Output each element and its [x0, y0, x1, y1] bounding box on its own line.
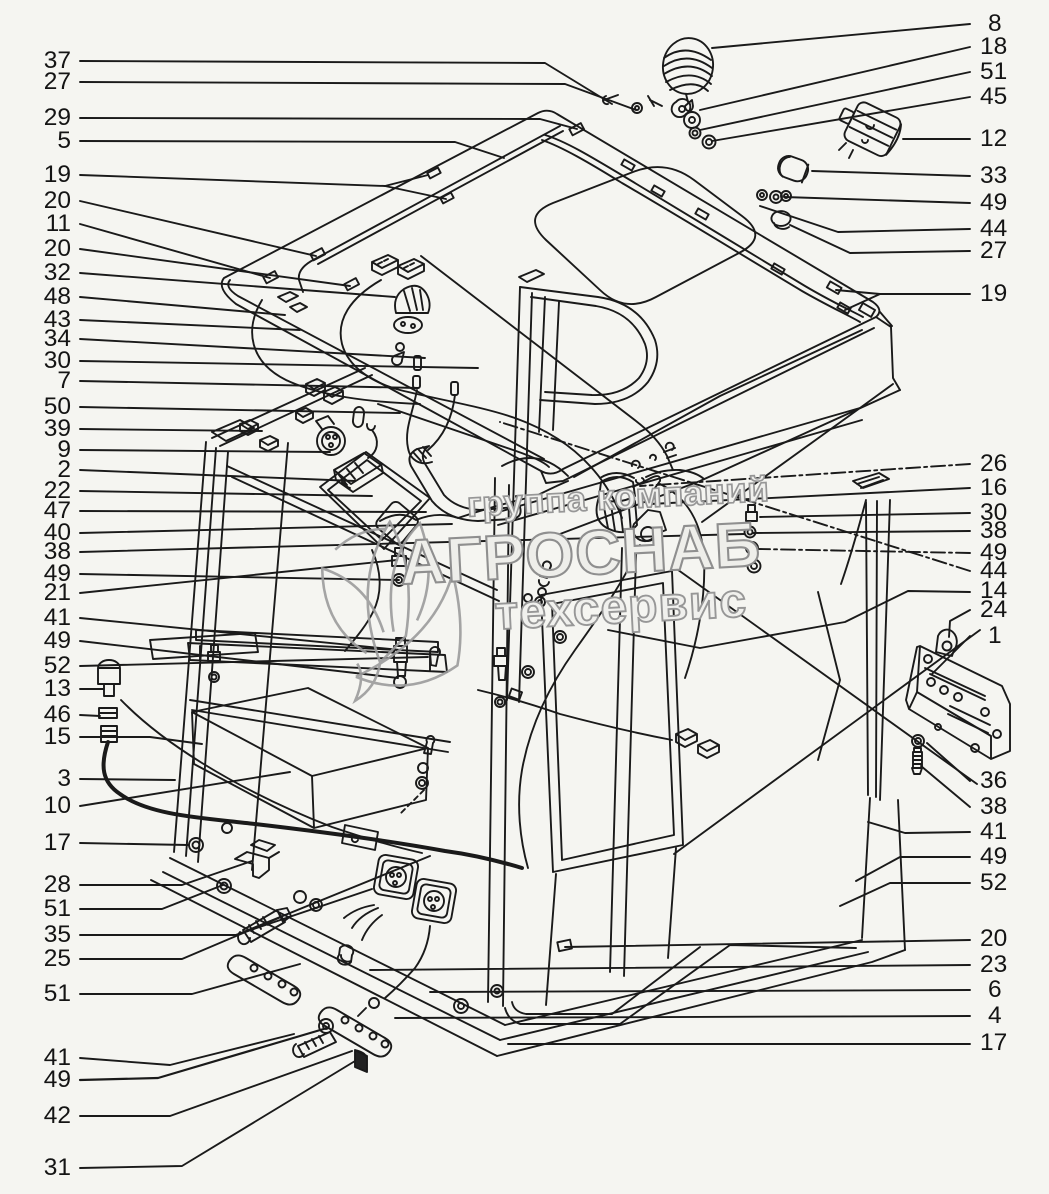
svg-text:21: 21: [44, 579, 71, 606]
svg-text:36: 36: [980, 767, 1007, 794]
svg-text:20: 20: [980, 925, 1007, 952]
svg-text:35: 35: [44, 921, 71, 948]
svg-text:51: 51: [44, 980, 71, 1007]
svg-text:20: 20: [44, 235, 71, 262]
svg-text:17: 17: [980, 1029, 1007, 1056]
svg-text:24: 24: [980, 596, 1007, 623]
svg-text:33: 33: [980, 162, 1007, 189]
svg-text:26: 26: [980, 450, 1007, 477]
svg-text:49: 49: [44, 1066, 71, 1093]
svg-text:7: 7: [57, 367, 71, 394]
svg-text:42: 42: [44, 1102, 71, 1129]
svg-text:17: 17: [44, 829, 71, 856]
svg-text:38: 38: [980, 793, 1007, 820]
svg-text:15: 15: [44, 723, 71, 750]
svg-text:1: 1: [988, 622, 1002, 649]
svg-text:27: 27: [44, 68, 71, 95]
svg-text:51: 51: [44, 895, 71, 922]
svg-text:41: 41: [980, 818, 1007, 845]
svg-text:12: 12: [980, 125, 1007, 152]
svg-text:31: 31: [44, 1154, 71, 1181]
svg-text:32: 32: [44, 259, 71, 286]
svg-text:52: 52: [980, 869, 1007, 896]
svg-text:27: 27: [980, 237, 1007, 264]
svg-text:16: 16: [980, 474, 1007, 501]
svg-text:19: 19: [980, 280, 1007, 307]
svg-text:5: 5: [57, 127, 71, 154]
svg-text:3: 3: [57, 765, 71, 792]
svg-text:4: 4: [988, 1002, 1002, 1029]
svg-text:10: 10: [44, 792, 71, 819]
svg-text:11: 11: [46, 210, 71, 237]
svg-text:49: 49: [980, 189, 1007, 216]
svg-text:51: 51: [980, 58, 1007, 85]
svg-text:25: 25: [44, 945, 71, 972]
svg-text:45: 45: [980, 83, 1007, 110]
svg-text:49: 49: [44, 627, 71, 654]
svg-text:19: 19: [44, 161, 71, 188]
svg-text:23: 23: [980, 951, 1007, 978]
svg-text:49: 49: [980, 843, 1007, 870]
svg-text:18: 18: [980, 33, 1007, 60]
svg-text:6: 6: [988, 976, 1002, 1003]
svg-text:28: 28: [44, 871, 71, 898]
svg-text:13: 13: [44, 675, 71, 702]
